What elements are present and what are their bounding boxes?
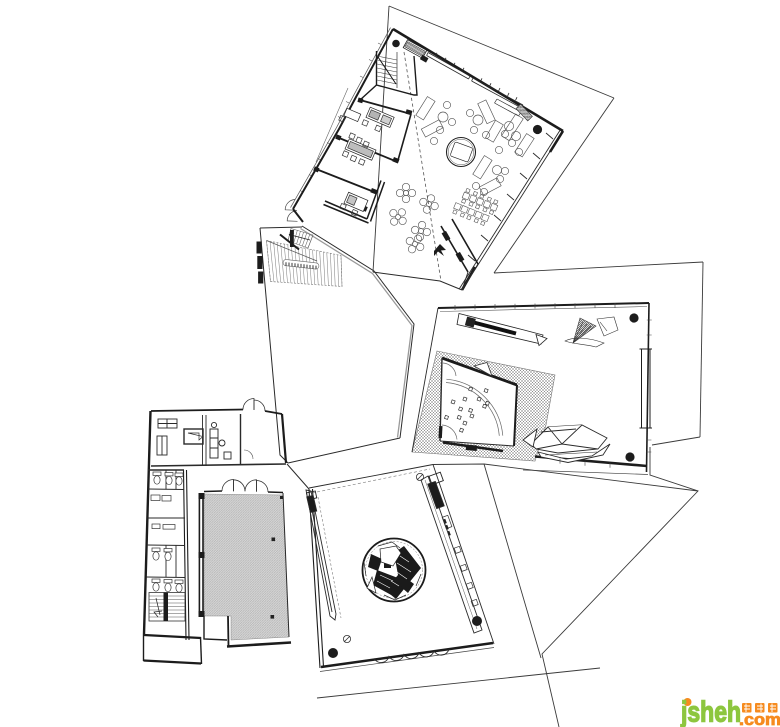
svg-text:jsheh: jsheh [680,697,741,727]
svg-text:.com: .com [739,711,780,727]
